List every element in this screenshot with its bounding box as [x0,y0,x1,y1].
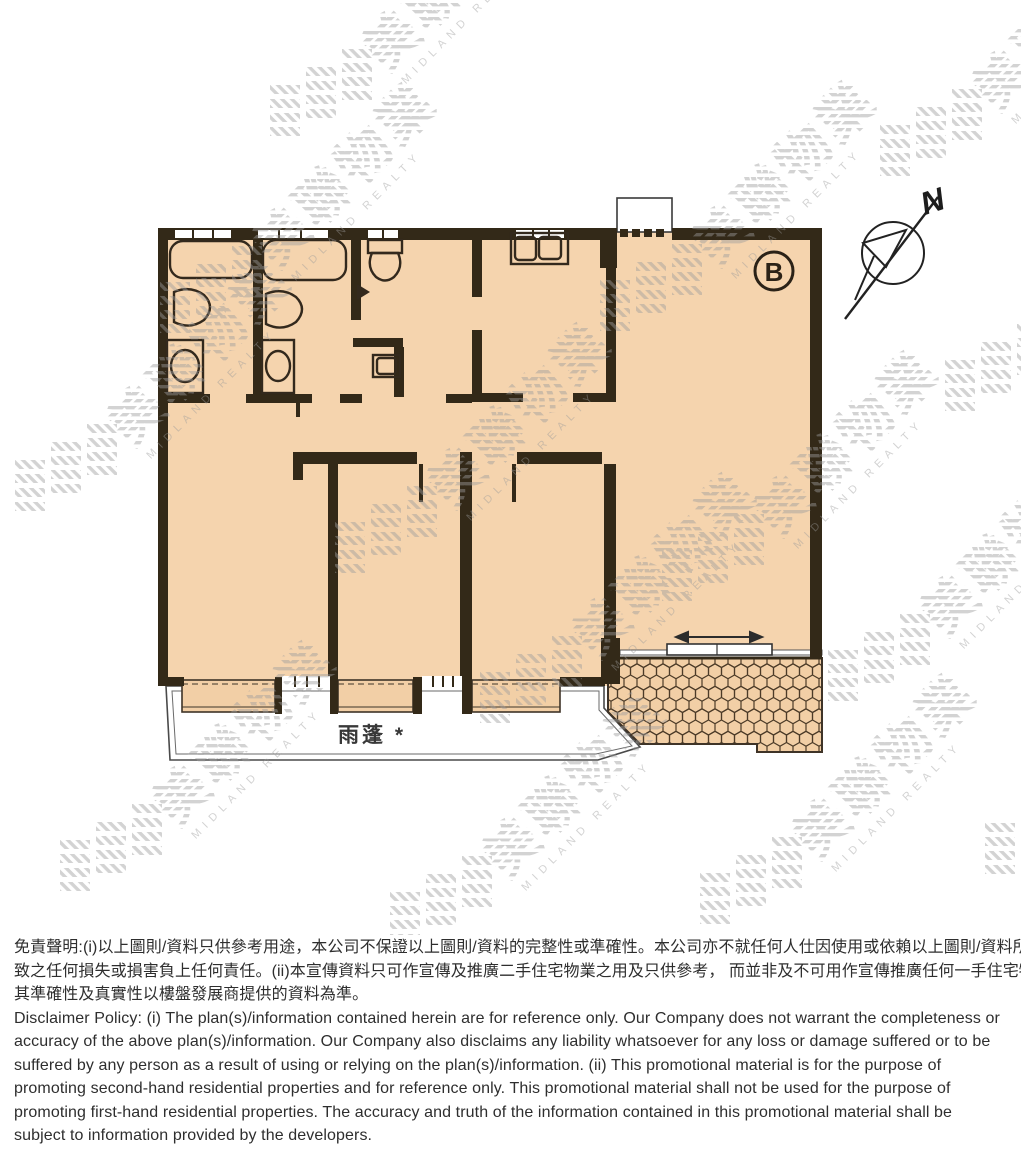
north-label: N [916,180,950,222]
north-compass-icon: N [845,180,950,319]
watermark [945,150,1021,411]
disclaimer-en-line: Disclaimer Policy: (i) The plan(s)/infor… [14,1007,1012,1031]
floor-plan-page: 美聯物業 MIDLAND REALTY 雨蓬 * [0,0,1021,1151]
disclaimer-text: 免責聲明:(i)以上圖則/資料只供參考用途，本公司不保證以上圖則/資料的完整性或… [14,936,1012,1148]
floor-plan-image: 美聯物業 MIDLAND REALTY 雨蓬 * [0,0,1021,935]
canopy-label: 雨蓬 * [338,724,406,747]
watermark [985,613,1021,874]
disclaimer-en-line: promoting second-hand residential proper… [14,1077,1012,1101]
disclaimer-en-line: accuracy of the above plan(s)/informatio… [14,1030,1012,1054]
disclaimer-zh-line: 致之任何損失或損害負上任何責任。(ii)本宣傳資料只可作宣傳及推廣二手住宅物業之… [14,960,1012,984]
watermark [880,0,1021,176]
disclaimer-en-line: suffered by any person as a result of us… [14,1054,1012,1078]
disclaimer-en-line: promoting first-hand residential propert… [14,1101,1012,1125]
disclaimer-en-line: subject to information provided by the d… [14,1124,1012,1148]
disclaimer-zh-line: 其準確性及真實性以樓盤發展商提供的資料為準。 [14,983,1012,1007]
disclaimer-zh-line: 免責聲明:(i)以上圖則/資料只供參考用途，本公司不保證以上圖則/資料的完整性或… [14,936,1012,960]
svg-text:B: B [765,257,784,287]
entrance-door [617,198,672,237]
